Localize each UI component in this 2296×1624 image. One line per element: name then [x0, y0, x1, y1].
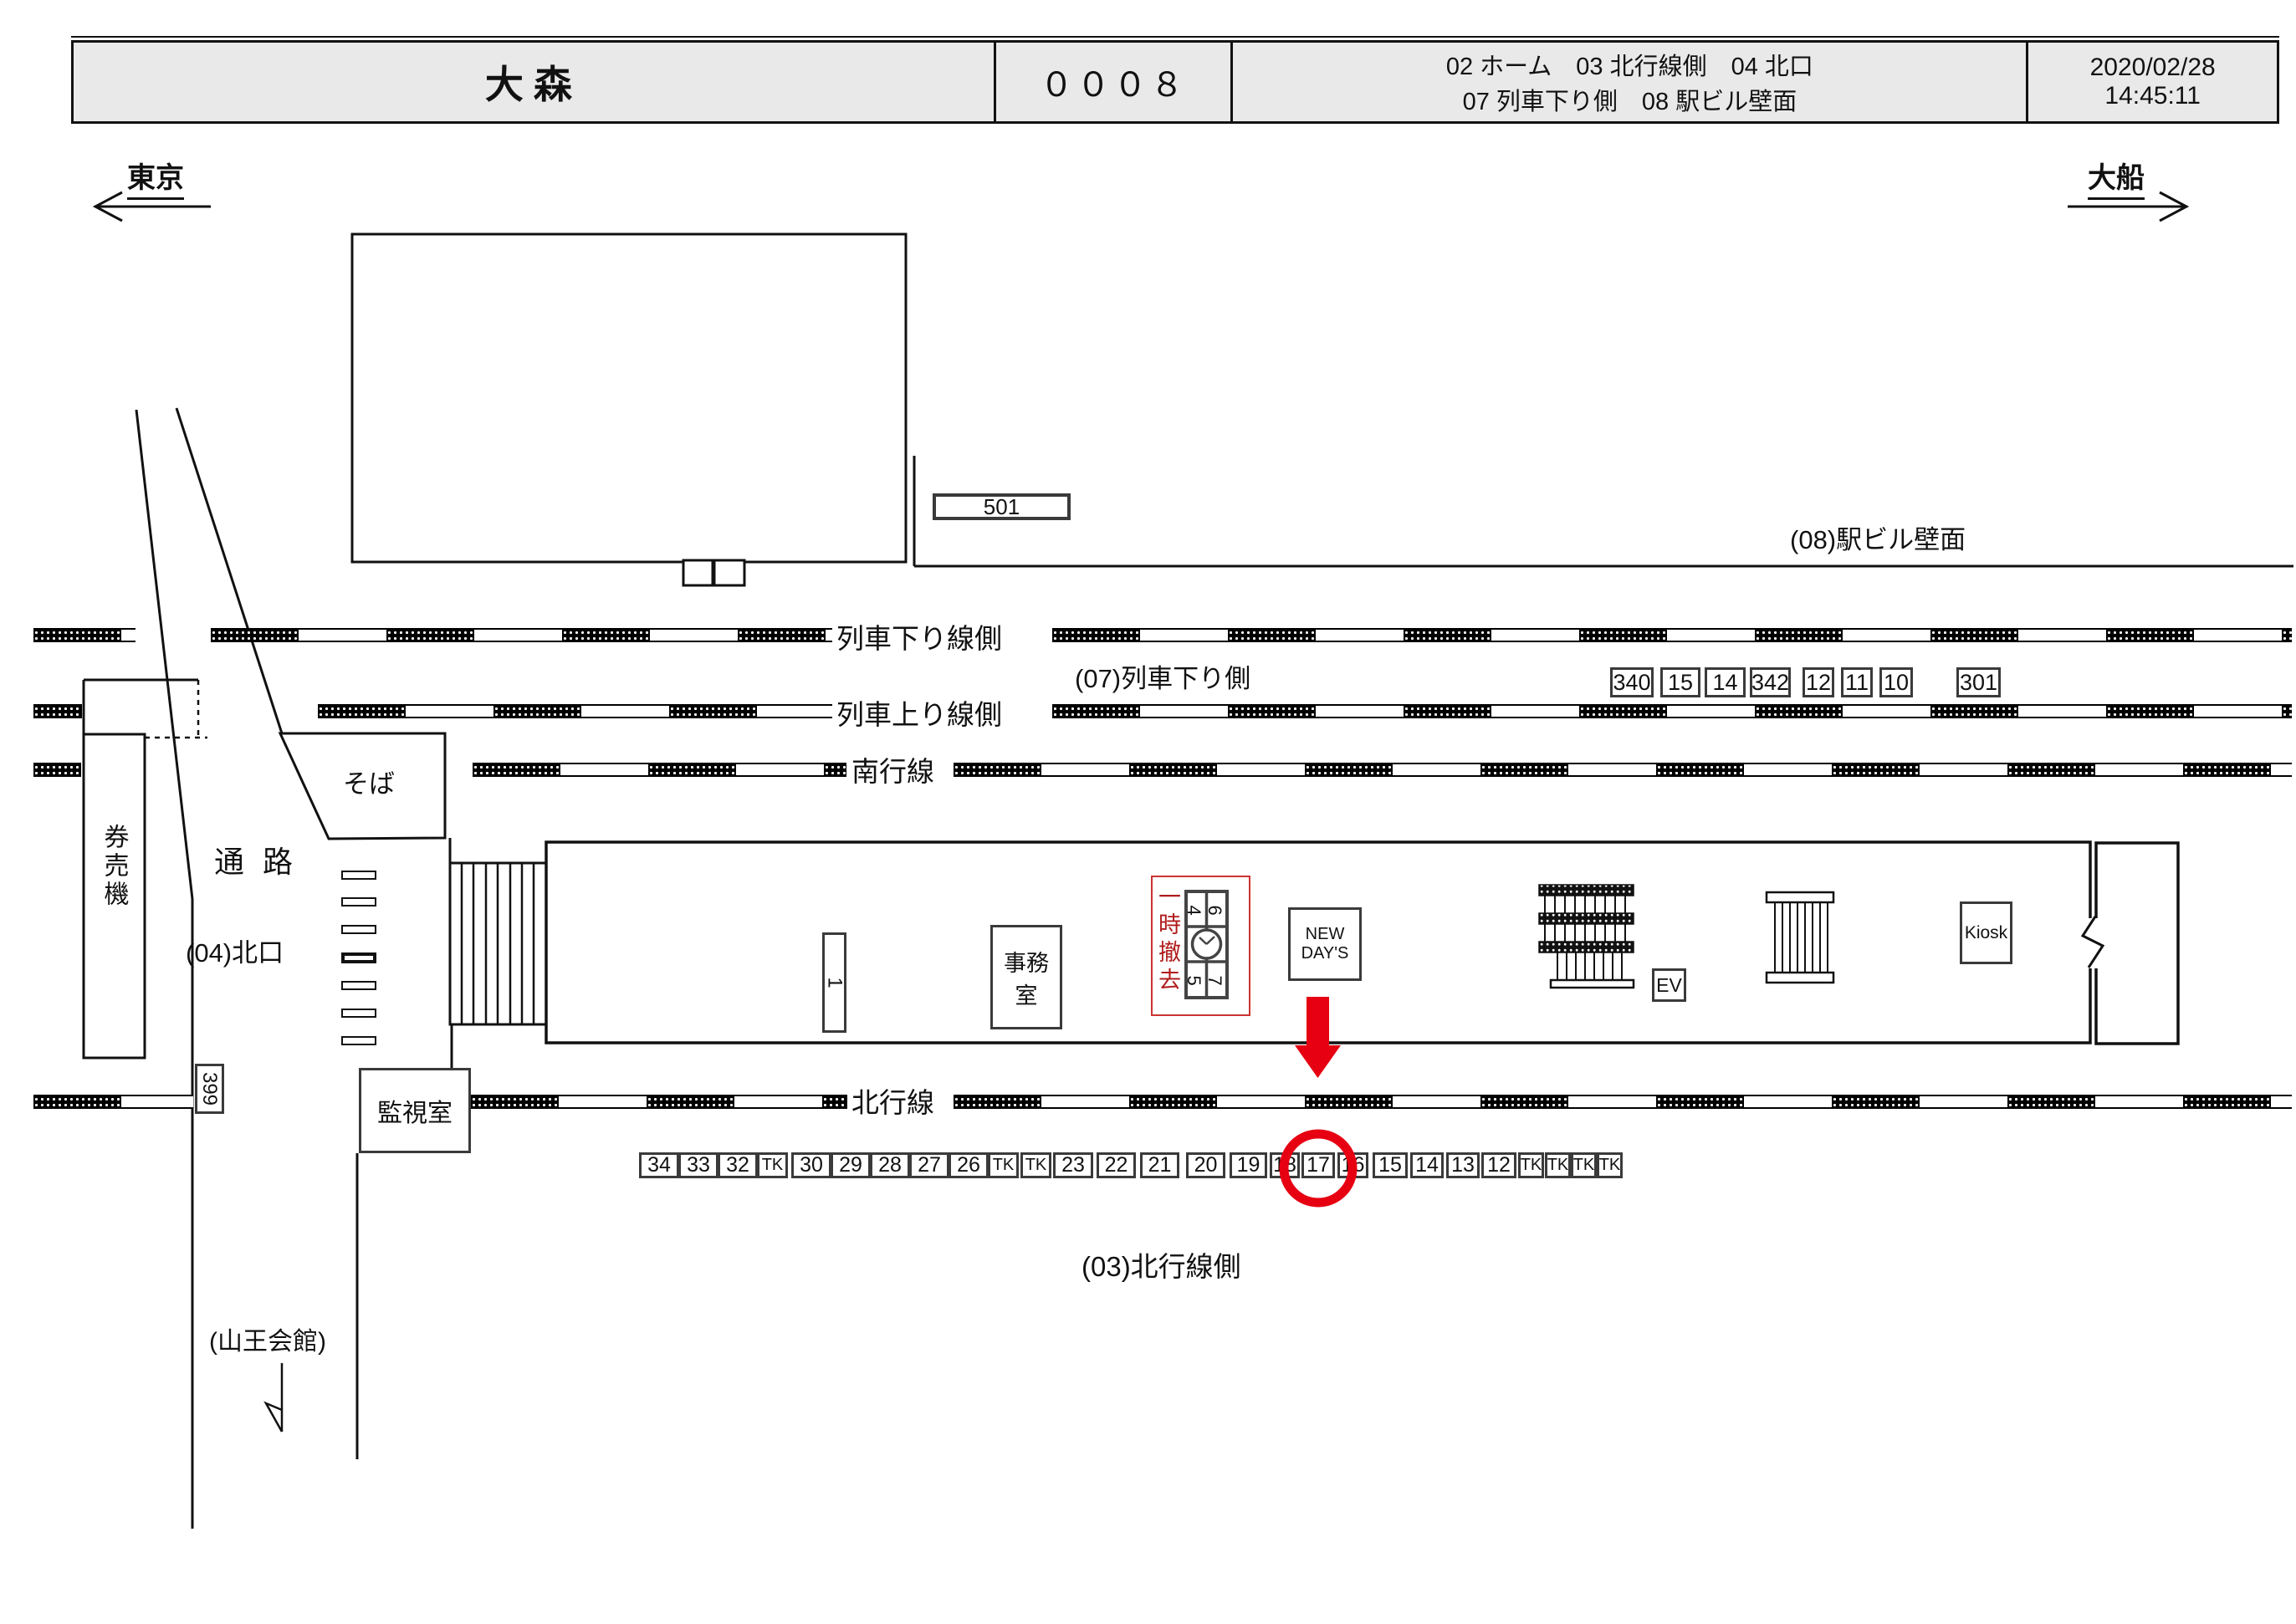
track-up-line — [318, 704, 832, 718]
monitor-room-label: 監視室 — [377, 1092, 453, 1129]
sanno-hall-label: (山王会館) — [209, 1328, 326, 1357]
ad-box-11[interactable]: 11 — [1841, 667, 1873, 697]
newdays-shop: NEW DAY'S — [1288, 907, 1362, 981]
map-linework — [0, 0, 2296, 1624]
area-08-label: (08)駅ビル壁面 — [1790, 525, 1966, 555]
ticket-machines-label: 券売機 — [99, 824, 128, 909]
ad-box-6[interactable]: 6 — [1204, 906, 1225, 916]
ad-box-33[interactable]: 33 — [678, 1152, 718, 1178]
track-down-side-label: 列車下り線側 — [836, 623, 1002, 655]
gate-bar — [341, 897, 376, 906]
ad-box-TK-10[interactable]: TK — [1020, 1152, 1051, 1178]
ad-box-340[interactable]: 340 — [1610, 667, 1654, 697]
ad-box-23[interactable]: 23 — [1053, 1152, 1093, 1178]
elevator-label: EV — [1656, 974, 1682, 997]
ad-box-TK-23[interactable]: TK — [1518, 1152, 1544, 1178]
office-label-line2: 室 — [1015, 978, 1038, 1010]
ad-box-501-label: 501 — [984, 494, 1020, 520]
break-symbol — [2083, 917, 2106, 968]
street-lines — [136, 408, 282, 899]
ad-box-16[interactable]: 16 — [1337, 1152, 1368, 1178]
category-legend-line2: 07 列車下り側 08 駅ビル壁面 — [1463, 82, 1797, 117]
category-legend-cell: 02 ホーム 03 北行線側 04 北口 07 列車下り側 08 駅ビル壁面 — [1233, 43, 2028, 121]
area-03-label: (03)北行線側 — [1082, 1251, 1241, 1283]
ad-box-32[interactable]: 32 — [718, 1152, 758, 1178]
ad-box-399[interactable]: 399 — [195, 1064, 224, 1114]
stairs-icon — [450, 863, 546, 1024]
ad-box-14[interactable]: 14 — [1705, 667, 1746, 697]
kiosk-label: Kiosk — [1965, 923, 2007, 943]
ad-box-20[interactable]: 20 — [1186, 1152, 1225, 1178]
ad-box-TK-26[interactable]: TK — [1597, 1152, 1623, 1178]
track-up-line — [33, 704, 82, 718]
date-text: 2020/02/28 — [2090, 54, 2216, 82]
soba-label: そば — [343, 769, 395, 799]
track-north-line — [33, 1095, 193, 1109]
track-south-line — [954, 763, 2292, 777]
ad-box-30[interactable]: 30 — [791, 1152, 831, 1178]
gate-bar — [341, 925, 376, 934]
ad-box-TK-9[interactable]: TK — [988, 1152, 1019, 1178]
track-north-line — [471, 1095, 847, 1109]
ad-box-10[interactable]: 10 — [1879, 667, 1913, 697]
gate-bar — [341, 952, 376, 963]
map-code-cell: ０００８ — [996, 43, 1234, 121]
ad-box-TK-25[interactable]: TK — [1571, 1152, 1597, 1178]
building-outline — [352, 234, 906, 585]
ad-box-27[interactable]: 27 — [909, 1152, 949, 1178]
area-07-label: (07)列車下り側 — [1075, 664, 1250, 694]
map-code: ０００８ — [1040, 58, 1187, 106]
title-bar: 大森 ０００８ 02 ホーム 03 北行線側 04 北口 07 列車下り側 08… — [71, 40, 2279, 124]
time-text: 14:45:11 — [2104, 82, 2201, 110]
ad-box-4[interactable]: 4 — [1183, 906, 1204, 916]
track-up-line — [1052, 704, 2292, 718]
track-south-line — [33, 763, 81, 777]
ad-box-34[interactable]: 34 — [639, 1152, 679, 1178]
track-up-side-label: 列車上り線側 — [836, 699, 1002, 731]
gate-bar — [341, 1009, 376, 1018]
sanno-arrow-icon — [266, 1363, 282, 1432]
track-north-label: 北行線 — [851, 1087, 934, 1119]
ad-box-342[interactable]: 342 — [1750, 667, 1791, 697]
ad-box-19[interactable]: 19 — [1230, 1152, 1267, 1178]
ad-box-13[interactable]: 13 — [1446, 1152, 1480, 1178]
station-name: 大森 — [485, 54, 582, 110]
gate-bar — [341, 1036, 376, 1045]
kiosk-shop: Kiosk — [1960, 901, 2012, 964]
newdays-label-line1: NEW — [1306, 925, 1345, 944]
ad-box-26[interactable]: 26 — [949, 1152, 989, 1178]
office-room: 事務 室 — [990, 925, 1062, 1029]
ad-box-1[interactable]: 1 — [822, 932, 846, 1033]
platform-end-outline — [2096, 843, 2178, 1044]
ad-box-7[interactable]: 7 — [1204, 976, 1225, 986]
gate-area-lines — [84, 680, 207, 738]
ad-box-18[interactable]: 18 — [1270, 1152, 1300, 1178]
ad-box-12[interactable]: 12 — [1481, 1152, 1516, 1178]
track-down-line — [211, 628, 832, 642]
ad-box-15[interactable]: 15 — [1373, 1152, 1408, 1178]
ad-box-14[interactable]: 14 — [1410, 1152, 1444, 1178]
ad-box-TK-3[interactable]: TK — [757, 1152, 788, 1178]
gate-bar — [341, 871, 376, 880]
ad-box-21[interactable]: 21 — [1140, 1152, 1179, 1178]
track-north-line — [954, 1095, 2292, 1109]
datetime-cell: 2020/02/28 14:45:11 — [2028, 43, 2277, 121]
ad-box-5[interactable]: 5 — [1183, 976, 1204, 986]
ad-box-17[interactable]: 17 — [1301, 1152, 1335, 1178]
track-down-line — [33, 628, 136, 642]
track-south-line — [473, 763, 846, 777]
station-ad-map: 大森 ０００８ 02 ホーム 03 北行線側 04 北口 07 列車下り側 08… — [0, 0, 2296, 1624]
ad-box-399-label: 399 — [198, 1072, 222, 1106]
track-south-label: 南行線 — [851, 756, 934, 788]
category-legend-line1: 02 ホーム 03 北行線側 04 北口 — [1446, 47, 1813, 82]
ad-box-22[interactable]: 22 — [1097, 1152, 1136, 1178]
direction-right-label: 大船 — [2088, 162, 2145, 200]
direction-left-label: 東京 — [127, 162, 184, 200]
passage-label: 通 路 — [214, 845, 298, 879]
ad-box-TK-24[interactable]: TK — [1545, 1152, 1571, 1178]
ad-box-28[interactable]: 28 — [870, 1152, 910, 1178]
station-name-cell: 大森 — [74, 43, 996, 121]
ad-box-301[interactable]: 301 — [1956, 667, 2001, 697]
gate-bar — [341, 981, 376, 990]
ad-box-12[interactable]: 12 — [1803, 667, 1834, 697]
office-label-line1: 事務 — [1004, 945, 1049, 978]
area-04-label: (04)北口 — [186, 938, 284, 968]
ad-box-501[interactable]: 501 — [933, 493, 1071, 520]
monitor-room: 監視室 — [359, 1068, 471, 1153]
temp-removed-label: 一時撤去 — [1154, 885, 1180, 1010]
ad-box-15[interactable]: 15 — [1660, 667, 1700, 697]
ad-box-1-label: 1 — [822, 977, 846, 988]
ad-box-29[interactable]: 29 — [831, 1152, 871, 1178]
elevator-box: EV — [1652, 968, 1686, 1002]
newdays-label-line2: DAY'S — [1301, 944, 1349, 963]
station-building-wall — [914, 456, 2293, 566]
track-down-line — [1052, 628, 2292, 642]
